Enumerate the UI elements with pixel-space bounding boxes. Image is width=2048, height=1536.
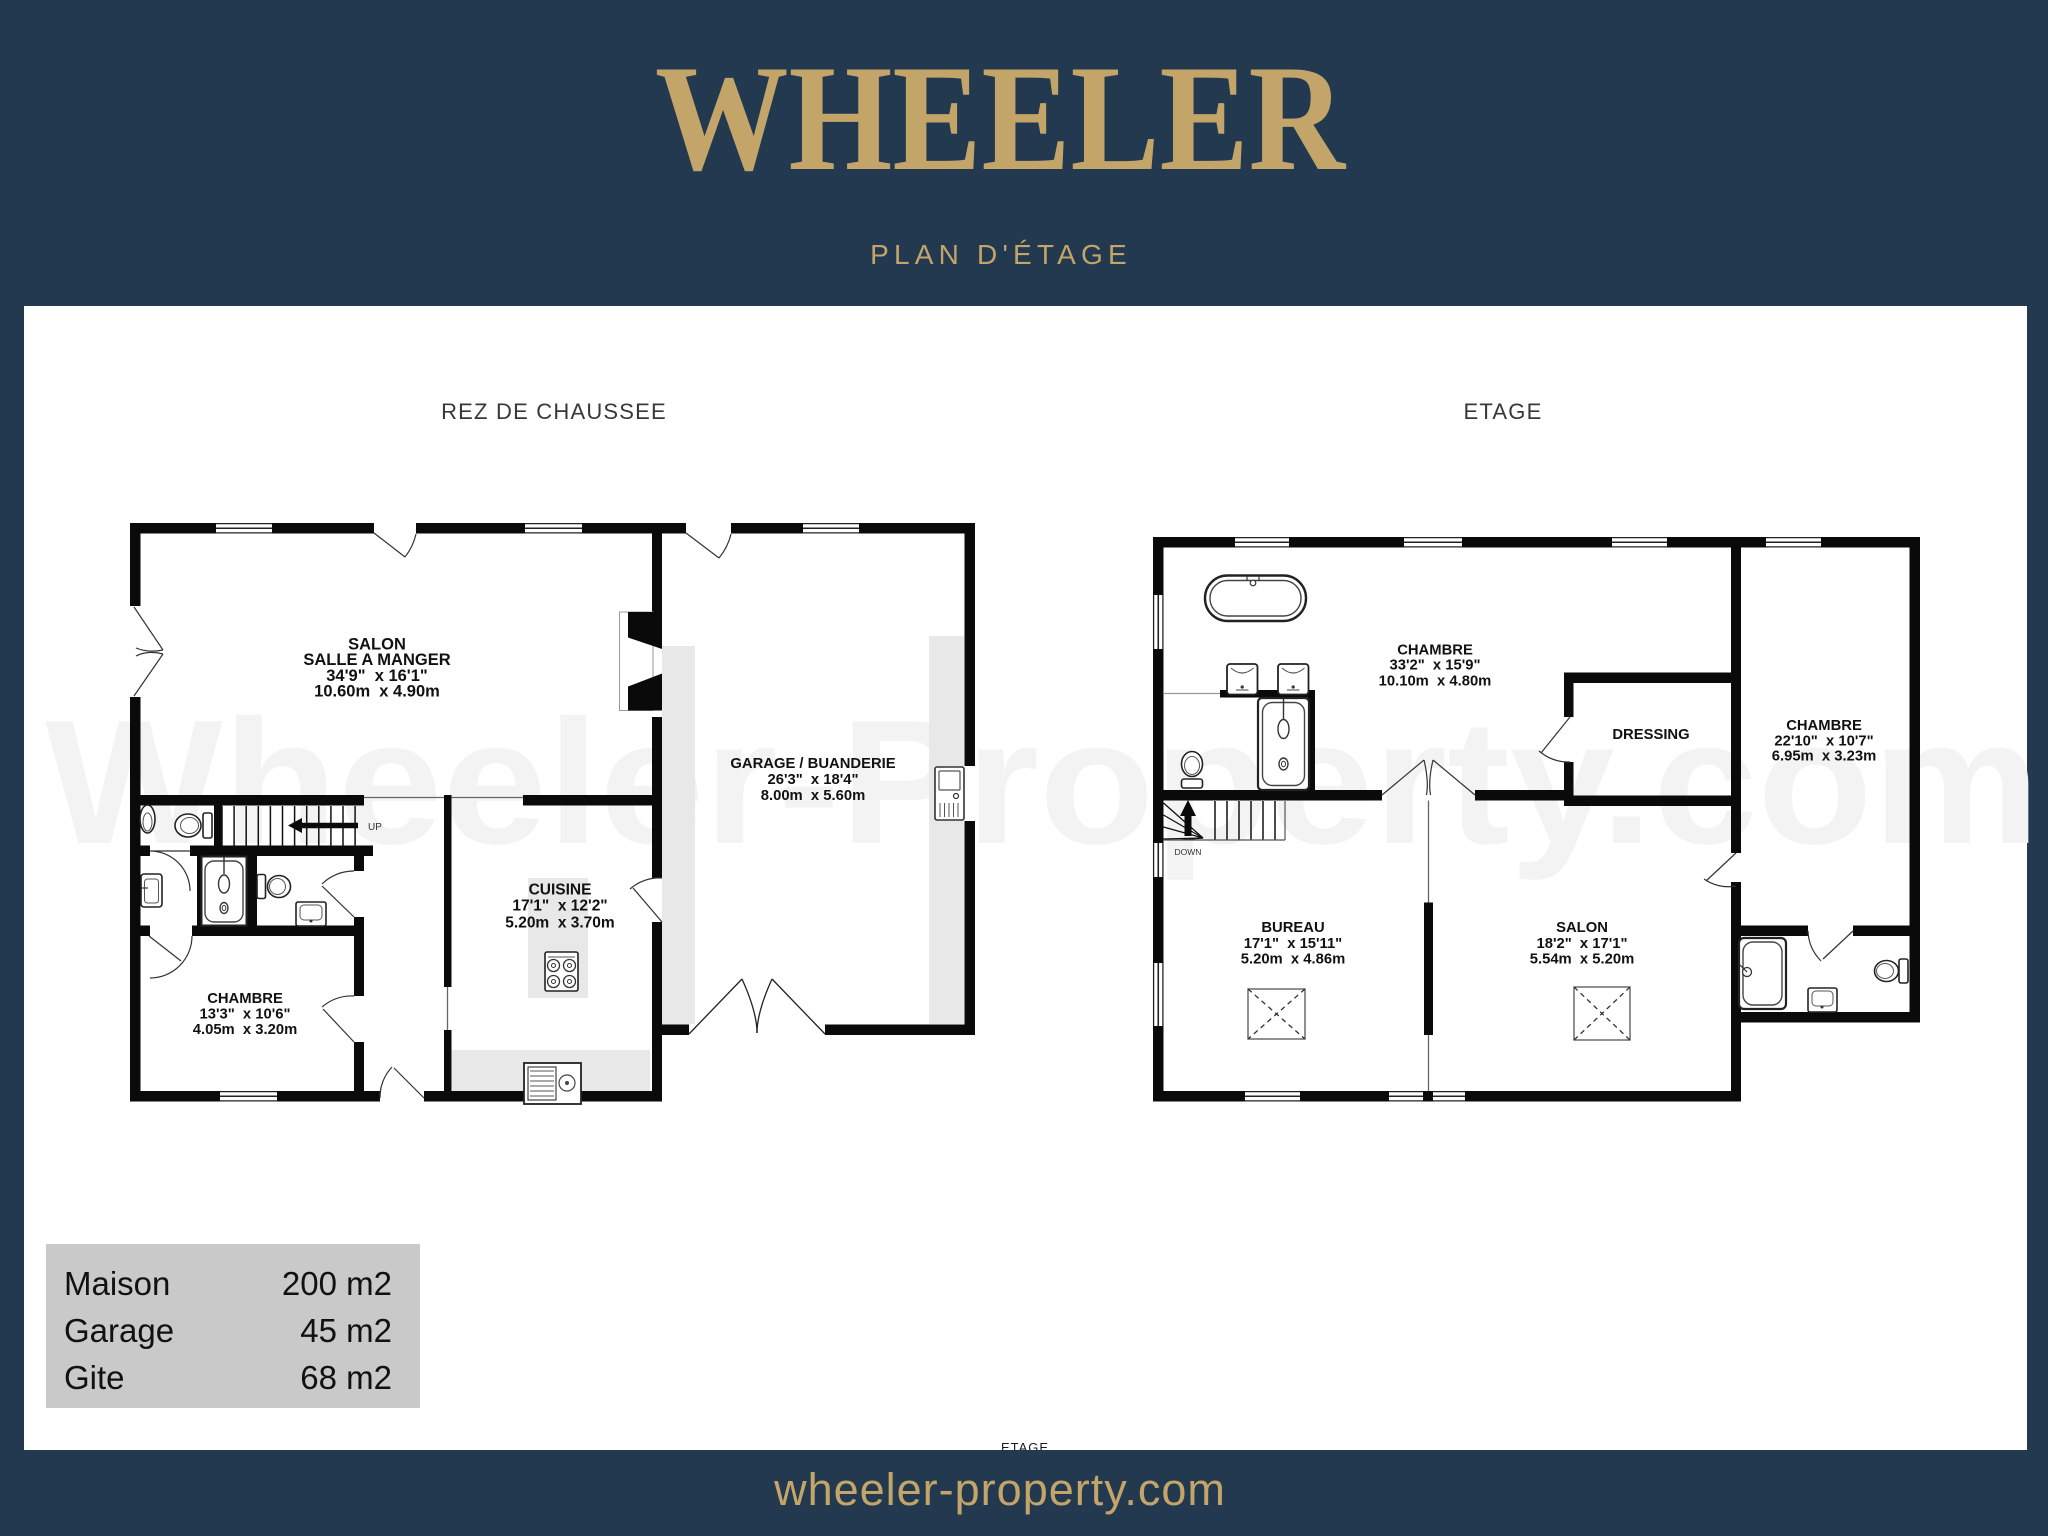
svg-text:4.05m x 3.20m: 4.05m x 3.20m [193,1022,297,1038]
svg-text:68 m2: 68 m2 [300,1359,392,1396]
svg-text:Gite: Gite [64,1359,125,1396]
svg-text:DRESSING: DRESSING [1612,727,1689,743]
svg-text:5.20m x 3.70m: 5.20m x 3.70m [505,915,614,932]
svg-text:ETAGE: ETAGE [1464,399,1543,424]
svg-text:PLAN D'ÉTAGE: PLAN D'ÉTAGE [870,239,1132,270]
svg-text:10.10m x 4.80m: 10.10m x 4.80m [1379,674,1492,690]
svg-text:5.54m x 5.20m: 5.54m x 5.20m [1530,952,1634,968]
svg-text:45 m2: 45 m2 [300,1312,392,1349]
svg-text:REZ DE CHAUSSEE: REZ DE CHAUSSEE [441,399,667,424]
svg-text:wheeler-property.com: wheeler-property.com [773,1464,1226,1515]
svg-text:GARAGE / BUANDERIE: GARAGE / BUANDERIE [730,756,895,772]
svg-text:CHAMBRE: CHAMBRE [1786,718,1862,734]
svg-text:33'2" x 15'9": 33'2" x 15'9" [1389,658,1480,674]
svg-text:200 m2: 200 m2 [282,1265,392,1302]
svg-text:26'3" x 18'4": 26'3" x 18'4" [767,772,858,788]
svg-text:CHAMBRE: CHAMBRE [207,991,283,1007]
svg-text:BUREAU: BUREAU [1261,920,1324,936]
svg-text:Garage: Garage [64,1312,174,1349]
svg-text:CHAMBRE: CHAMBRE [1397,643,1473,659]
svg-text:18'2" x 17'1": 18'2" x 17'1" [1536,936,1627,952]
svg-text:13'3" x 10'6": 13'3" x 10'6" [199,1007,290,1023]
svg-text:17'1" x 15'11": 17'1" x 15'11" [1244,936,1342,952]
svg-text:WHEELER: WHEELER [655,34,1347,202]
svg-text:DOWN: DOWN [1175,847,1202,857]
svg-text:Maison: Maison [64,1265,170,1302]
svg-text:5.20m x 4.86m: 5.20m x 4.86m [1241,952,1345,968]
svg-text:8.00m x 5.60m: 8.00m x 5.60m [761,788,865,804]
svg-text:UP: UP [368,822,382,833]
svg-text:17'1" x 12'2": 17'1" x 12'2" [512,898,607,915]
svg-text:CUISINE: CUISINE [529,882,592,899]
svg-text:10.60m x 4.90m: 10.60m x 4.90m [314,683,440,701]
svg-text:22'10" x 10'7": 22'10" x 10'7" [1774,734,1873,750]
svg-text:6.95m x 3.23m: 6.95m x 3.23m [1772,749,1876,765]
svg-text:SALON: SALON [1556,920,1608,936]
